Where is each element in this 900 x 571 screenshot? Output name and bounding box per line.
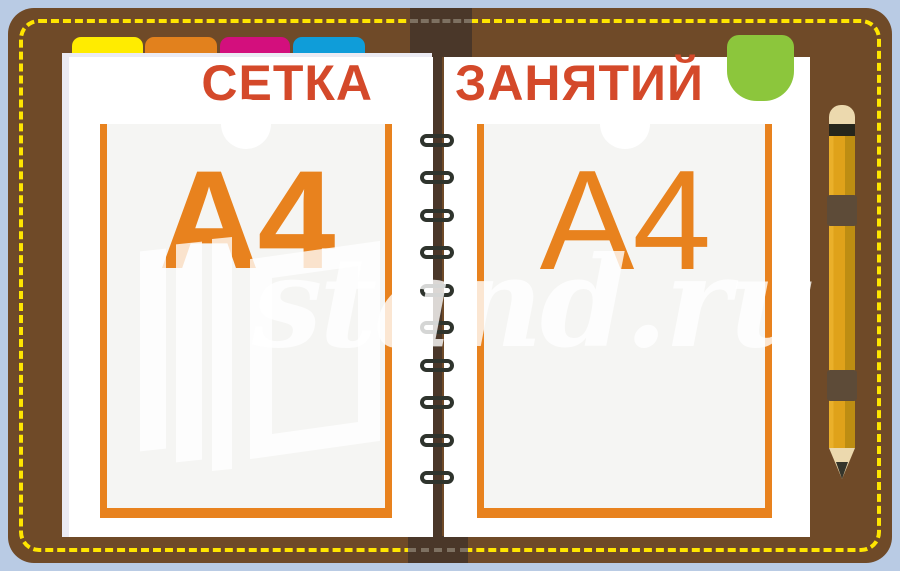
binder-ring xyxy=(420,246,454,259)
a4-label-right: А4 xyxy=(484,150,765,292)
binder-ring xyxy=(420,359,454,372)
spine-top-strip xyxy=(410,8,472,57)
pencil-lead xyxy=(836,462,848,479)
pencil-icon xyxy=(829,105,855,485)
spine-wire xyxy=(433,57,442,537)
binder-ring xyxy=(420,171,454,184)
a4-pocket-right: А4 xyxy=(477,124,772,518)
binder-ring xyxy=(420,471,454,484)
spine-top-stitches xyxy=(410,19,472,23)
binder-ring xyxy=(420,209,454,222)
pencil-strap-top xyxy=(827,195,857,226)
binder-ring xyxy=(420,134,454,147)
a4-pocket-left: А4 xyxy=(100,124,392,518)
stand-product-image: { "stand": { "title_left": "СЕТКА", "tit… xyxy=(0,0,900,571)
pencil-eraser xyxy=(829,105,855,124)
binder-ring xyxy=(420,284,454,297)
binder-ring xyxy=(420,434,454,447)
a4-label-left: А4 xyxy=(107,150,385,290)
pencil-ferrule xyxy=(829,124,855,136)
binder-ring xyxy=(420,321,454,334)
title-word-right: ЗАНЯТИЙ xyxy=(455,57,704,109)
pencil-strap-bottom xyxy=(827,370,857,401)
spine-bottom-stitches xyxy=(408,548,468,552)
pencil-body xyxy=(829,136,855,448)
binder-ring xyxy=(420,396,454,409)
bookmark-tab xyxy=(727,35,794,101)
